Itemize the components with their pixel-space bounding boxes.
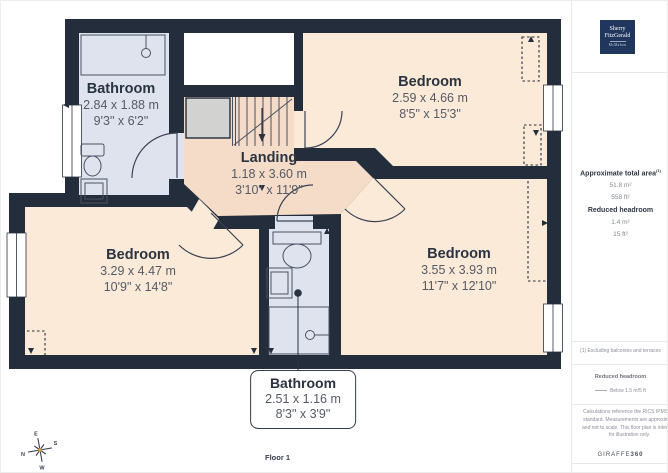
agency-logo-line2: FitzGerald (600, 33, 635, 40)
window-icon (63, 105, 82, 177)
window-icon (544, 304, 563, 352)
legend-row: Below 1.5 m/5 ft (572, 388, 668, 394)
giraffe360-watermark: GIRAFFE360 (572, 452, 668, 458)
total-area-imperial: 558 ft² (572, 194, 668, 201)
total-area-note-ref: (1) (656, 168, 661, 173)
sidebar-divider (572, 463, 668, 464)
disclaimer-text: Calculations reference the RICS IPMS 3C … (572, 409, 668, 440)
total-area-label: Approximate total area(1) (572, 168, 668, 177)
agency-logo-line1: Sherry (600, 20, 635, 33)
bedroom-top-right-floor (303, 33, 547, 166)
agency-logo: Sherry FitzGerald McMahon (600, 20, 635, 54)
compass-south-label: S (54, 441, 58, 447)
bathroom-top-left-floor (79, 33, 169, 195)
floor-label: Floor 1 (265, 453, 290, 462)
compass-north-label: N (21, 452, 25, 458)
legend-value: Below 1.5 m/5 ft (610, 388, 646, 394)
agency-logo-divider (610, 41, 626, 42)
bathroom-bottom-doorway (275, 216, 313, 229)
total-area-label-text: Approximate total area (580, 170, 656, 177)
window-icon (544, 85, 563, 131)
room-name: Bathroom (265, 375, 341, 392)
bedroom-bottom-left-floor (25, 207, 259, 355)
footnote-excluding: (1) Excluding balconies and terraces (572, 348, 668, 354)
compass-east-label: E (34, 432, 38, 438)
room-size-imperial: 8'3" x 3'9" (265, 407, 341, 422)
sidebar-divider (572, 364, 668, 365)
sidebar-divider (572, 341, 668, 342)
watermark-number: 360 (631, 452, 644, 458)
bedroom-top-right-doorway (294, 111, 303, 148)
legend-title: Reduced headroom (572, 374, 668, 380)
headroom-imperial: 15 ft² (572, 231, 668, 238)
agency-logo-subtitle: McMahon (600, 43, 635, 47)
sidebar-divider (572, 404, 668, 405)
window-icon (7, 233, 26, 297)
stairwell-void (184, 33, 294, 85)
info-sidebar: Sherry FitzGerald McMahon Approximate to… (571, 1, 668, 472)
headroom-metric: 1.4 m² (572, 219, 668, 226)
watermark-name: GIRAFFE (597, 452, 630, 458)
sidebar-divider (572, 72, 668, 73)
compass-rose-icon: E S N W (21, 432, 58, 472)
room-size-metric: 2.51 x 1.16 m (265, 392, 341, 407)
compass-west-label: W (39, 466, 45, 472)
bedroom-bottom-right-floor (341, 178, 547, 355)
headroom-label: Reduced headroom (572, 207, 668, 214)
reduced-headroom-line-icon (595, 390, 607, 391)
total-area-metric: 51.8 m² (572, 182, 668, 189)
room-callout-bathroom-bottom: Bathroom 2.51 x 1.16 m 8'3" x 3'9" (250, 370, 356, 429)
floorplan-page: E S N W Bathroom 2.84 x 1.88 m 9'3" x 6'… (0, 0, 668, 473)
